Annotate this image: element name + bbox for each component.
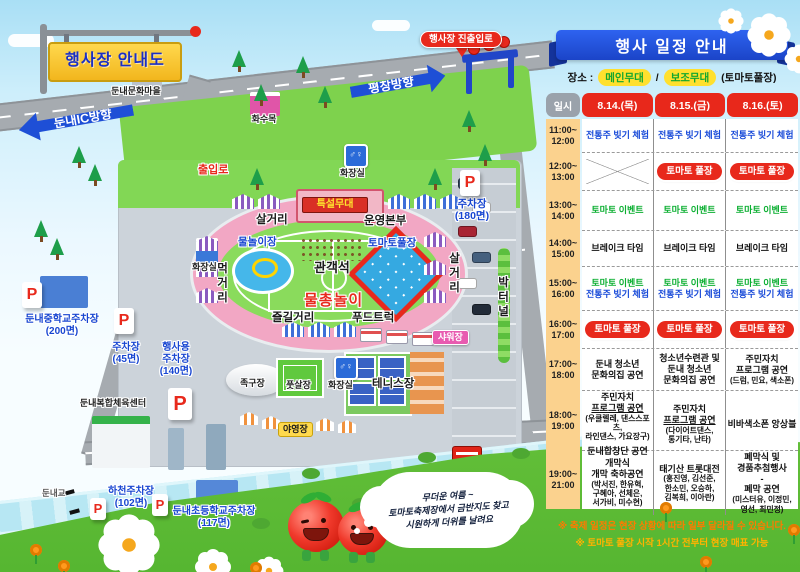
- event-cell-r3c3: 토마토 이벤트: [726, 191, 798, 230]
- tree-icon: [428, 168, 442, 190]
- tree-icon: [50, 238, 64, 260]
- orange-flower-icon: [58, 560, 70, 572]
- schedule-row: 14:00~15:00브레이크 타임브레이크 타임브레이크 타임: [546, 231, 798, 267]
- schedule-row: 12:00~13:00토마토 풀장토마토 풀장: [546, 153, 798, 191]
- daisy-flower-icon: [749, 15, 790, 56]
- festival-poster: ♂♀ ♂♀ 행사장 안내도 둔내문화마을화수목둔내IC방향평창방향행사장 진출입…: [0, 0, 800, 572]
- sports-center-label: 둔내복합체육센터: [66, 398, 160, 409]
- waterplay-label: 물놀이장: [238, 236, 277, 248]
- futsal-label: 풋살장: [286, 380, 311, 391]
- event-cell-r2c2: 토마토 풀장: [654, 153, 726, 190]
- event-cell-r6c3: 토마토 풀장: [726, 311, 798, 348]
- tree-icon: [250, 168, 264, 190]
- bush-icon: [418, 452, 436, 463]
- salgeori-top-label: 살거리: [256, 214, 288, 228]
- event-cell-r3c2: 토마토 이벤트: [654, 191, 726, 230]
- event-cell-r5c2: 토마토 이벤트전통주 빚기 체험: [654, 267, 726, 310]
- restroom-icon: ♂♀: [344, 144, 368, 168]
- elem-parking-label: 둔내초등학교주차장(117면): [156, 506, 272, 530]
- tree-icon: [462, 110, 476, 132]
- time-cell: 13:00~14:00: [546, 191, 580, 231]
- time-cell: 12:00~13:00: [546, 153, 580, 191]
- venue-separator: /: [656, 72, 659, 84]
- audience-area: [300, 237, 362, 261]
- mascot-eye: [321, 518, 326, 523]
- time-cell: 18:00~19:00: [546, 391, 580, 451]
- schedule-row: 16:00~17:00토마토 풀장토마토 풀장토마토 풀장: [546, 311, 798, 349]
- event-cell-r5c3: 토마토 이벤트전통주 빚기 체험: [726, 267, 798, 310]
- tree-icon: [318, 86, 332, 108]
- event-cell-r3c1: 토마토 이벤트: [582, 191, 654, 230]
- tomato-pool-pill: 토마토 풀장: [657, 321, 721, 337]
- event-cell-r2c3: 토마토 풀장: [726, 153, 798, 190]
- mascot-leg: [349, 552, 358, 563]
- orange-flower-icon: [30, 544, 42, 556]
- car-icon: [458, 278, 477, 289]
- tomato-pool-pill: 토마토 풀장: [657, 163, 721, 179]
- event-cell-r7c3: 주민자치프로그램 공연(드럼, 민요, 색소폰): [726, 349, 798, 390]
- jokgu-label: 족구장: [240, 378, 265, 389]
- orange-flower-icon: [660, 502, 672, 514]
- tomato-pool-pill: 토마토 풀장: [730, 321, 794, 337]
- tree-icon: [296, 56, 310, 78]
- bush-icon: [302, 468, 320, 479]
- entrance-arch: [466, 60, 472, 94]
- daisy-flower-icon: [785, 45, 800, 72]
- stage-label: 특설무대: [302, 197, 368, 213]
- middle-school-building: [40, 276, 88, 308]
- schedule-row: 13:00~14:00토마토 이벤트토마토 이벤트토마토 이벤트: [546, 191, 798, 231]
- tennis-label: 테니스장: [372, 378, 414, 392]
- event-parking-label: 행사용주차장(140면): [150, 342, 202, 377]
- column-header-day-1: 8.14.(목): [582, 93, 653, 117]
- schedule-body: 11:00~12:00전통주 빚기 체험전통주 빚기 체험전통주 빚기 체험12…: [546, 119, 798, 509]
- parking-180-label: 주차장(180면): [444, 198, 500, 223]
- ops-label: 운영본부: [364, 215, 406, 229]
- audience-label: 관객석: [314, 260, 350, 275]
- speech-bubble: 무더운 여름 ~ 토마토축제장에서 금반지도 찾고 시원하게 더위를 날려요: [372, 472, 524, 548]
- schedule-header: 일시8.14.(목)8.15.(금)8.16.(토): [546, 93, 798, 117]
- swim-ring-icon: [252, 258, 278, 278]
- location-label: 장소 :: [568, 72, 594, 84]
- tennis-court: [378, 356, 406, 380]
- tree-icon: [34, 220, 48, 242]
- event-cell-r4c2: 브레이크 타임: [654, 231, 726, 266]
- time-cell: 17:00~18:00: [546, 349, 580, 391]
- bakteonel-label: 박터널: [495, 276, 509, 320]
- event-cell-r8c3: 비바색소폰 앙상블: [726, 391, 798, 457]
- jeulgil-label: 즐길거리: [272, 312, 314, 326]
- sign-ball: [190, 26, 201, 37]
- p-school: P: [22, 282, 42, 308]
- bubble-tail: [364, 518, 373, 527]
- tree-icon: [88, 164, 102, 186]
- car-icon: [472, 252, 491, 263]
- restroom-left-label: 화장실: [192, 262, 217, 273]
- event-cell-r9c3: 폐막식 및경품추첨행사-폐막 공연(미스터유, 이정민,영선, 최민정): [726, 451, 798, 515]
- restroom-icon: ♂♀: [334, 356, 358, 380]
- event-cell-r4c1: 브레이크 타임: [582, 231, 654, 266]
- event-cell-r8c1: 주민자치프로그램 공연(우쿨렐레, 댄스스포츠,라인댄스, 가요장구) 둔내합창…: [582, 391, 654, 457]
- watergun-label: 물총놀이: [304, 292, 363, 310]
- sports-center-building: [92, 416, 150, 468]
- entry-label: 출입로: [198, 164, 228, 177]
- food-truck-icon: [360, 328, 382, 342]
- event-cell-r2c1: [582, 153, 654, 190]
- hwasumok-label: 화수목: [240, 114, 288, 125]
- schedule-location: 장소 : 메인무대 / 보조무대 (토마토풀장): [546, 69, 798, 86]
- cloud-icon: [372, 20, 410, 31]
- shower-label: 샤워장: [432, 330, 469, 345]
- time-cell: 11:00~12:00: [546, 119, 580, 153]
- orange-flower-icon: [700, 556, 712, 568]
- car-icon: [458, 226, 477, 237]
- tree-icon: [232, 50, 246, 72]
- p-elem: P: [152, 494, 168, 516]
- restroom-mid-label: 화장실: [328, 380, 353, 391]
- event-cell-r1c2: 전통주 빚기 체험: [654, 119, 726, 152]
- time-cell: 16:00~17:00: [546, 311, 580, 349]
- schedule-row: 11:00~12:00전통주 빚기 체험전통주 빚기 체험전통주 빚기 체험: [546, 119, 798, 153]
- culture-village-label: 둔내문화마을: [98, 86, 174, 97]
- orange-flower-icon: [250, 562, 262, 572]
- salgeori-right-label: 살거리: [446, 252, 460, 296]
- venue-note: (토마토풀장): [721, 72, 776, 84]
- camping-label: 야영장: [278, 422, 313, 437]
- event-cell-r4c3: 브레이크 타임: [726, 231, 798, 266]
- tomato-pool-pill: 토마토 풀장: [585, 321, 649, 337]
- tomato-pool-label: 토마토풀장: [368, 237, 416, 249]
- time-cell: 15:00~16:00: [546, 267, 580, 311]
- schedule-note-2: ※ 토마토 풀장 시작 1시간 전부터 현장 매표 가능: [546, 535, 798, 549]
- school-parking-label: 둔내중학교주차장(200면): [10, 314, 114, 338]
- parking-45-label: 주차장(45면): [102, 342, 150, 366]
- event-cell-r6c2: 토마토 풀장: [654, 311, 726, 348]
- schedule-panel: 행사 일정 안내 장소 : 메인무대 / 보조무대 (토마토풀장) 일시8.14…: [546, 30, 798, 549]
- orange-building: [410, 352, 444, 414]
- restroom-top-label: 화장실: [340, 168, 365, 179]
- event-cell-r1c1: 전통주 빚기 체험: [582, 119, 654, 152]
- daisy-flower-icon: [196, 550, 230, 572]
- event-cell-r1c3: 전통주 빚기 체험: [726, 119, 798, 152]
- schedule-row: 17:00~18:00둔내 청소년문화의집 공연청소년수련관 및둔내 청소년문화…: [546, 349, 798, 391]
- mascot-leg: [302, 550, 311, 561]
- schedule-row: 18:00~19:00주민자치프로그램 공연(우쿨렐레, 댄스스포츠,라인댄스,…: [546, 391, 798, 451]
- event-cell-r5c1: 토마토 이벤트전통주 빚기 체험: [582, 267, 654, 310]
- event-cell-r9c1: 개막식개막 축하공연(박서진, 한유혁,구혜아, 선체은,서가비, 미수현): [582, 451, 654, 515]
- mascot-leg: [320, 550, 329, 561]
- venue-main-stage: 메인무대: [598, 69, 651, 86]
- car-icon: [472, 304, 491, 315]
- column-header-time: 일시: [546, 93, 580, 117]
- daisy-flower-icon: [719, 9, 743, 33]
- entrance-road-sign: 행사장 진출입로: [420, 31, 502, 48]
- column-header-day-2: 8.15.(금): [655, 93, 726, 117]
- food-truck-icon: [412, 332, 434, 346]
- speech-bubble-text: 무더운 여름 ~ 토마토축제장에서 금반지도 찾고 시원하게 더위를 날려요: [386, 486, 509, 533]
- event-cell-r7c1: 둔내 청소년문화의집 공연: [582, 349, 654, 390]
- schedule-note-1: ※ 축제 일정은 현장 상황에 따라 일부 달라질 수 있습니다.: [546, 518, 798, 532]
- venue-sub-stage: 보조무대: [664, 69, 717, 86]
- down-arrow-icon: [456, 48, 468, 57]
- mascot-leg: [366, 552, 375, 563]
- tree-icon: [254, 84, 268, 106]
- daisy-flower-icon: [100, 516, 158, 572]
- tree-icon: [478, 144, 492, 166]
- entrance-arch: [508, 54, 514, 88]
- bridge-label: 둔내교: [42, 488, 65, 498]
- schedule-row: 19:00~21:00개막식개막 축하공연(박서진, 한유혁,구혜아, 선체은,…: [546, 451, 798, 509]
- bubble-tail: [354, 528, 360, 534]
- tomato-pool-pill: 토마토 풀장: [730, 163, 794, 179]
- tower-building: [168, 428, 184, 470]
- column-header-day-3: 8.16.(토): [727, 93, 798, 117]
- p-45: P: [114, 308, 134, 334]
- futsal-field: [276, 358, 324, 398]
- food-truck-icon: [386, 330, 408, 344]
- bush-icon: [512, 448, 530, 459]
- tree-icon: [72, 146, 86, 168]
- orange-flower-icon: [788, 524, 800, 536]
- event-cell-r6c1: 토마토 풀장: [582, 311, 654, 348]
- event-cell-r7c2: 청소년수련관 및둔내 청소년문화의집 공연: [654, 349, 726, 390]
- schedule-row: 15:00~16:00토마토 이벤트전통주 빚기 체험토마토 이벤트전통주 빚기…: [546, 267, 798, 311]
- tower-building: [206, 424, 226, 470]
- p-parking-180: P: [460, 170, 480, 196]
- foodtruck-label: 푸드트럭: [352, 312, 394, 326]
- time-cell: 19:00~21:00: [546, 451, 580, 509]
- time-cell: 14:00~15:00: [546, 231, 580, 267]
- map-title: 행사장 안내도: [48, 42, 182, 82]
- event-cell-r8c2: 주민자치프로그램 공연(다이어트댄스,통기타, 난타): [654, 391, 726, 457]
- p-event: P: [168, 388, 192, 420]
